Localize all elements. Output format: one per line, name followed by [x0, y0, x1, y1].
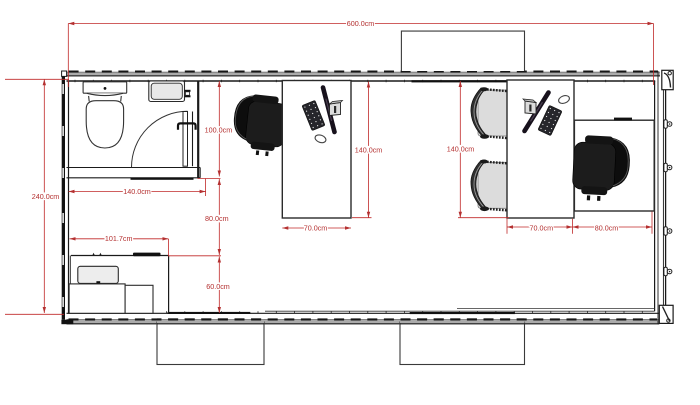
- svg-text:140.0cm: 140.0cm: [447, 144, 475, 153]
- svg-text:100.0cm: 100.0cm: [205, 126, 233, 135]
- svg-text:600.0cm: 600.0cm: [347, 19, 375, 28]
- svg-text:70.0cm: 70.0cm: [304, 224, 328, 233]
- svg-text:80.0cm: 80.0cm: [595, 223, 619, 232]
- svg-text:101.7cm: 101.7cm: [105, 234, 133, 243]
- svg-text:140.0cm: 140.0cm: [123, 187, 151, 196]
- svg-text:140.0cm: 140.0cm: [355, 145, 383, 154]
- svg-text:70.0cm: 70.0cm: [530, 223, 554, 232]
- svg-text:60.0cm: 60.0cm: [206, 282, 230, 291]
- svg-text:80.0cm: 80.0cm: [205, 214, 229, 223]
- svg-text:240.0cm: 240.0cm: [32, 192, 60, 201]
